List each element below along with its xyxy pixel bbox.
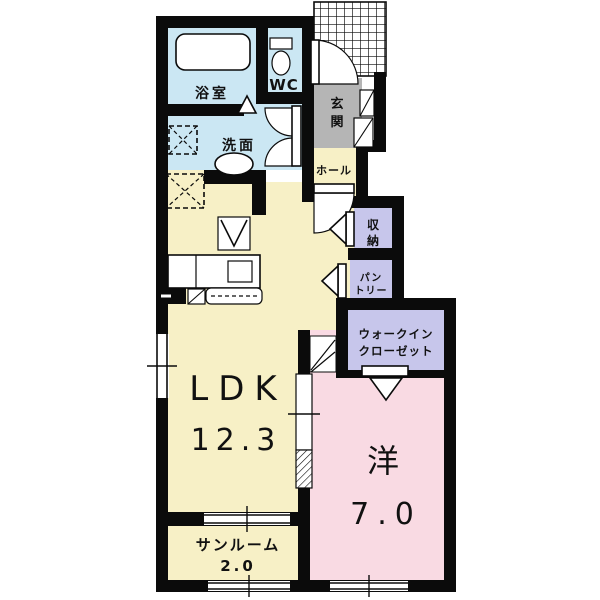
wall-bath-bottom [156, 104, 244, 116]
western-room-label: 洋 [367, 442, 399, 480]
sliding-door-panel [296, 374, 312, 450]
bathtub [176, 34, 250, 70]
hall-door-leaf [314, 184, 354, 193]
stove [228, 261, 252, 282]
ldk-niche-floor [168, 170, 204, 184]
floor-plan-svg: 浴室 WC 洗面 玄 関 ホール 収 納 パン トリー ウォークイン クローゼッ… [0, 0, 600, 600]
ldk-size: 12.3 [191, 423, 282, 458]
bathroom-label: 浴室 [195, 85, 229, 102]
washroom-door-leaf [292, 106, 301, 166]
wall-kitchen-stub [252, 170, 266, 215]
entrance-label-2: 関 [330, 115, 343, 130]
washbasin [215, 153, 253, 175]
hall-label: ホール [316, 164, 352, 177]
sliding-door-pocket [296, 450, 312, 488]
toilet-tank [270, 38, 292, 49]
kitchen-sink-symbol [218, 217, 250, 250]
wall-entrance-right [374, 72, 386, 152]
storage-label-1: 収 [367, 218, 380, 232]
pantry-label-2: トリー [355, 285, 388, 297]
western-room-size: 7.0 [350, 497, 422, 532]
wic-label-1: ウォークイン [359, 327, 434, 341]
sunroom-size: 2.0 [220, 557, 256, 575]
wall-top [156, 16, 314, 28]
entrance-door-leaf [311, 40, 319, 84]
pantry-door-leaf [338, 264, 346, 298]
wall-bath-wc-divider [256, 16, 268, 104]
wic-label-2: クローゼット [359, 344, 434, 358]
ldk-label: LDK [189, 369, 286, 409]
toilet-bowl [272, 51, 290, 75]
floor-plan-canvas: 浴室 WC 洗面 玄 関 ホール 収 納 パン トリー ウォークイン クローゼッ… [0, 0, 600, 600]
entrance-label-1: 玄 [330, 96, 343, 112]
sunroom-label: サンルーム [196, 536, 281, 554]
wall-wic-left [336, 298, 348, 374]
washroom-label: 洗面 [222, 137, 256, 154]
wic-door-leaf [362, 366, 408, 376]
western-entry-door [310, 336, 336, 372]
pantry-label-1: パン [360, 272, 383, 284]
storage-door-leaf [346, 212, 354, 246]
wall-right [444, 298, 456, 592]
wall-storage-pantry-divider [348, 248, 404, 260]
storage-label-2: 納 [367, 233, 379, 248]
walk-in-closet-floor [348, 310, 444, 372]
wc-label: WC [269, 76, 299, 94]
